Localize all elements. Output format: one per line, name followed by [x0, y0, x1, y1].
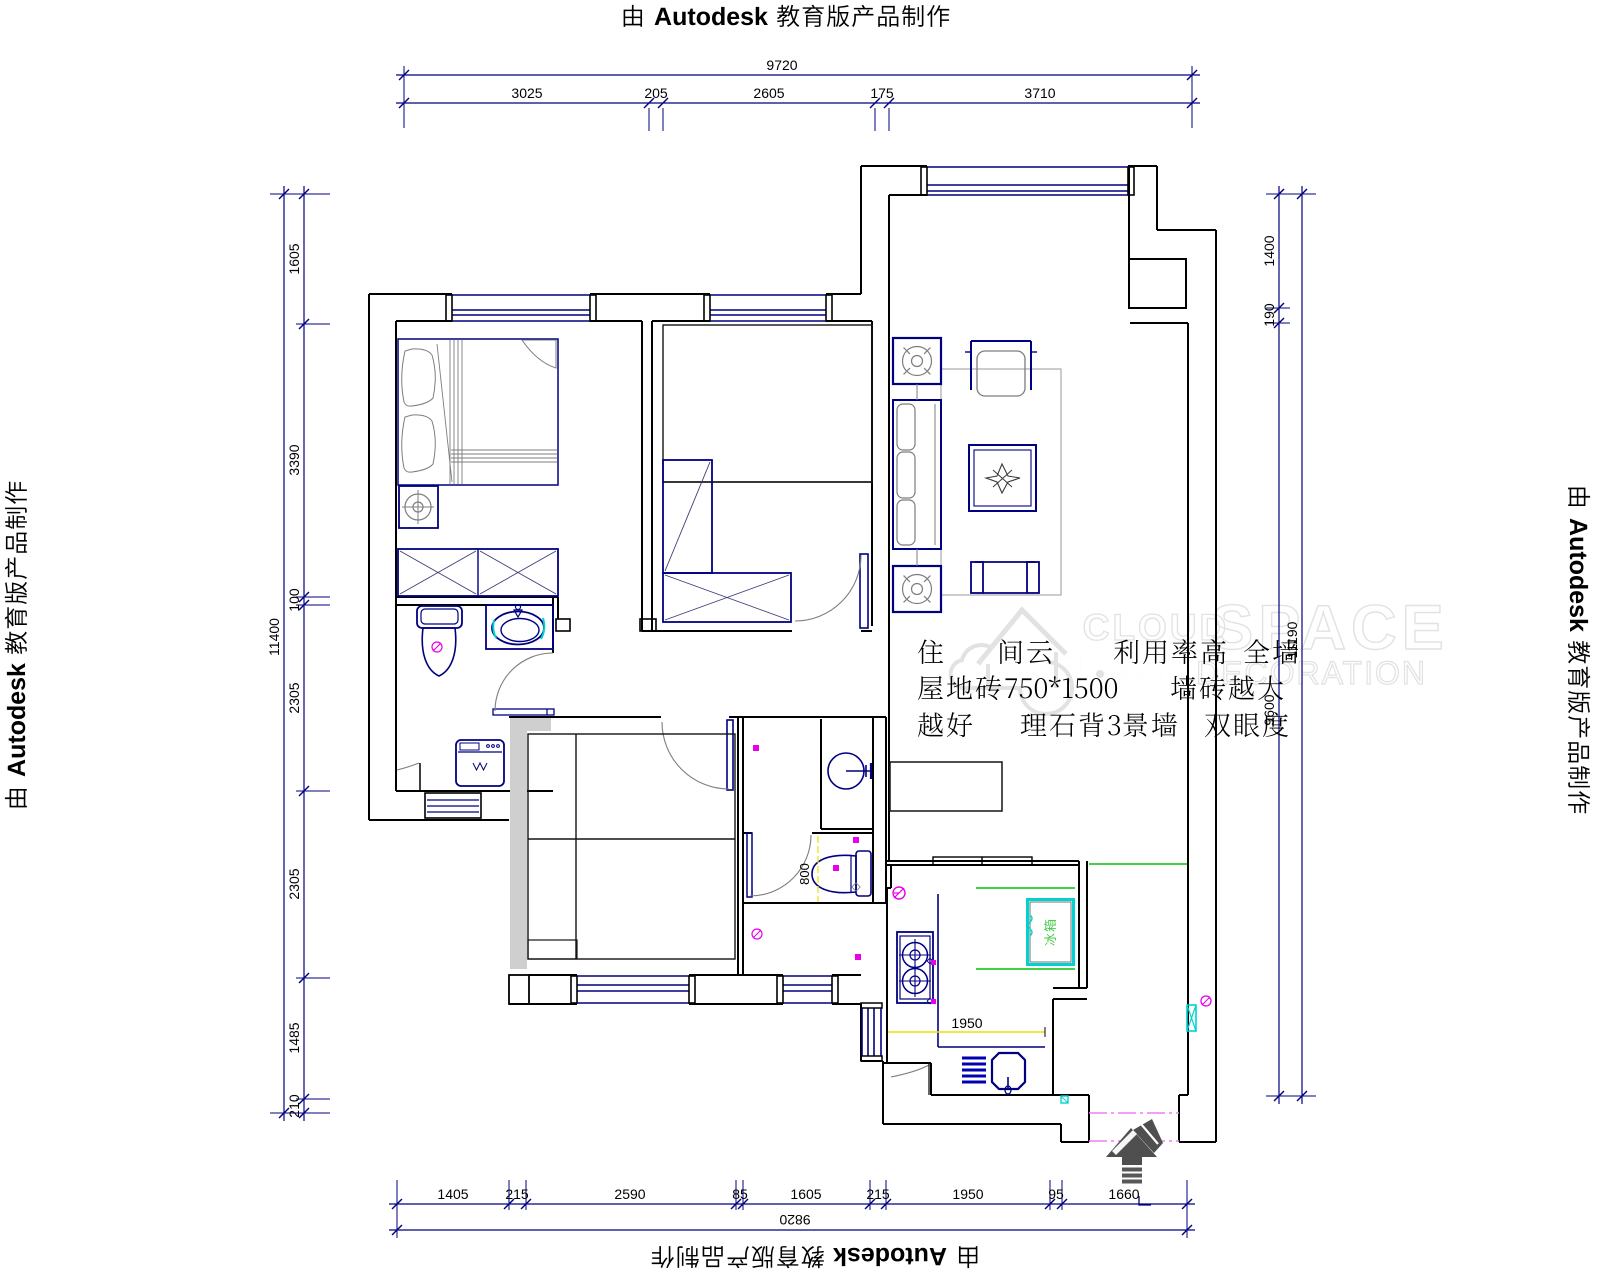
svg-text:2590: 2590 — [614, 1186, 645, 1202]
svg-text:190: 190 — [1261, 303, 1277, 327]
svg-text:800: 800 — [797, 863, 812, 885]
svg-text:215: 215 — [505, 1186, 529, 1202]
svg-text:3390: 3390 — [286, 444, 302, 475]
svg-text:1660: 1660 — [1108, 1186, 1139, 1202]
svg-text:1605: 1605 — [790, 1186, 821, 1202]
svg-text:3025: 3025 — [511, 85, 542, 101]
svg-text:9720: 9720 — [766, 57, 797, 73]
svg-text:9820: 9820 — [779, 1212, 810, 1228]
svg-text:1950: 1950 — [951, 1015, 982, 1031]
svg-text:2305: 2305 — [286, 868, 302, 899]
svg-text:11400: 11400 — [266, 618, 282, 656]
svg-text:85: 85 — [732, 1186, 748, 1202]
svg-text:215: 215 — [866, 1186, 890, 1202]
svg-text:3710: 3710 — [1024, 85, 1055, 101]
svg-text:1950: 1950 — [952, 1186, 983, 1202]
svg-text:2605: 2605 — [753, 85, 784, 101]
svg-text:1400: 1400 — [1261, 235, 1277, 266]
svg-text:205: 205 — [644, 85, 668, 101]
svg-text:175: 175 — [870, 85, 894, 101]
svg-text:100: 100 — [286, 588, 302, 612]
svg-text:1405: 1405 — [437, 1186, 468, 1202]
svg-text:1605: 1605 — [286, 243, 302, 274]
svg-text:2305: 2305 — [286, 682, 302, 713]
svg-text:DECORATION: DECORATION — [1196, 655, 1427, 691]
svg-text:1485: 1485 — [286, 1022, 302, 1053]
svg-text:SPACE: SPACE — [1211, 593, 1448, 663]
svg-text:95: 95 — [1048, 1186, 1064, 1202]
svg-text:210: 210 — [286, 1094, 302, 1118]
